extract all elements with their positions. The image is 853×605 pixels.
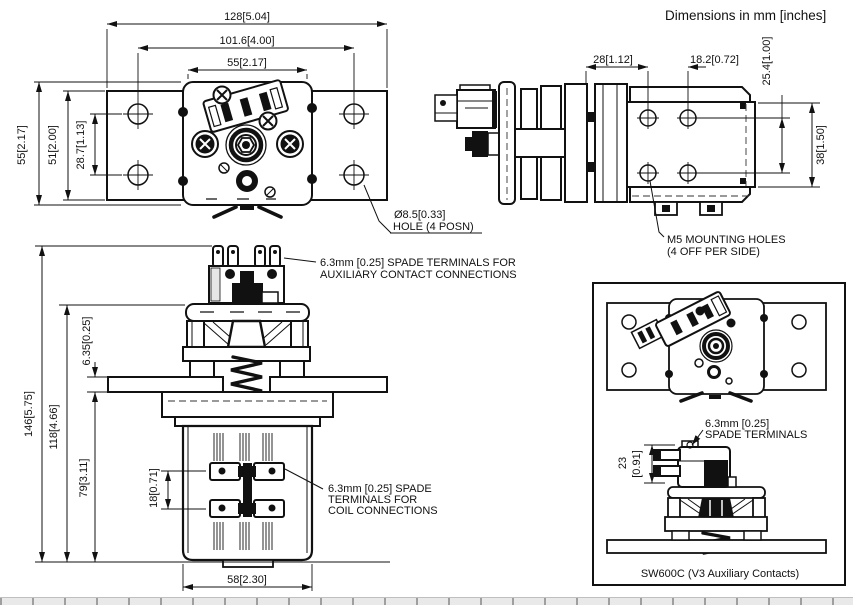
housing-neck: [175, 417, 320, 426]
right-post: [280, 361, 304, 377]
m5-note-line2: (4 OFF PER SIDE): [667, 246, 760, 258]
aux-terminal-blades: [213, 246, 280, 267]
drawing-sheet: 128[5.04] 101.6[4.00] 55[2.17] 55[2.17] …: [0, 0, 853, 605]
top-view: 128[5.04] 101.6[4.00] 55[2.17] 55[2.17] …: [16, 11, 482, 233]
dim-under-flange-label: 79[3.11]: [78, 459, 90, 498]
dimension-drawing: 128[5.04] 101.6[4.00] 55[2.17] 55[2.17] …: [0, 0, 853, 605]
dim-hole-spacing-h-label: 18.2[0.72]: [690, 54, 739, 66]
can-hatch-top: [214, 433, 272, 461]
flange-right: [270, 377, 387, 392]
variant-plan: [607, 291, 826, 401]
side-view: 28[1.12] 18.2[0.72] 25.4[1.00] 38[1.50] …: [435, 37, 827, 258]
dim-plate-height-label: 51[2.00]: [47, 125, 59, 165]
dim-flange-thickness-label: 6.35[0.25]: [81, 317, 93, 366]
body-profile: [499, 82, 627, 204]
dim-hole-spacing-h-label: 101.6[4.00]: [219, 35, 274, 47]
variant-caption: SW600C (V3 Auxiliary Contacts): [641, 568, 799, 580]
bracket-side: [627, 87, 755, 215]
dim-bracket-height-label: 38[1.50]: [815, 125, 827, 165]
dim-body-to-hole-label: 28[1.12]: [593, 54, 633, 66]
aux-terminal-note: 6.3mm [0.25] SPADE TERMINALS FOR AUXILIA…: [284, 257, 517, 281]
coil-note-line3: COIL CONNECTIONS: [328, 505, 438, 517]
bracket-feet: [655, 202, 722, 215]
aux-variant-box: 23 [0.91] 6.3mm [0.25] SPADE TERMINALS S…: [593, 283, 845, 585]
aux-switch-front: [209, 266, 284, 303]
m5-note-line1: M5 MOUNTING HOLES: [667, 234, 786, 246]
dim-body-height-label: 118[4.66]: [48, 404, 60, 449]
plan-legs: [214, 205, 281, 217]
center-stud: [226, 125, 266, 165]
housing-top: [162, 392, 333, 417]
dim-overall-height-label: 55[2.17]: [16, 125, 28, 165]
front-view: 146[5.75] 118[4.66] 6.35[0.25] 79[3.11] …: [23, 246, 517, 591]
aux-note-line2: AUXILIARY CONTACT CONNECTIONS: [320, 269, 517, 281]
dim-body-width-label: 55[2.17]: [227, 57, 267, 69]
units-note: Dimensions in mm [inches]: [665, 8, 826, 23]
flange-left: [108, 377, 223, 392]
hole-note-line1: Ø8.5[0.33]: [394, 209, 445, 221]
left-post: [190, 361, 214, 377]
dim-hole-spacing-v-label: 25.4[1.00]: [761, 37, 773, 86]
dim-hole-spacing-v-label: 28.7[1.13]: [75, 121, 87, 170]
dim-overall-height-label: 146[5.75]: [23, 391, 35, 437]
aux-note-line1: 6.3mm [0.25] SPADE TERMINALS FOR: [320, 257, 516, 269]
hole-note-line2: HOLE (4 POSN): [393, 221, 474, 233]
dim-overall-width-label: 128[5.04]: [224, 11, 270, 23]
spade-note-line2: SPADE TERMINALS: [705, 429, 807, 441]
can-hatch-bottom: [214, 522, 272, 550]
return-spring: [231, 357, 262, 396]
page-edge-strip: [0, 597, 853, 605]
aux-switch-side: [435, 85, 502, 157]
frame-braces: [187, 321, 308, 347]
bottom-boss: [223, 560, 273, 567]
dim-base-width-label: 58[2.30]: [227, 574, 267, 586]
dim-switch-height-mm-label: 23: [617, 457, 629, 469]
dim-coil-terminal-spacing-label: 18[0.71]: [148, 468, 160, 508]
dim-switch-height-in-label: [0.91]: [631, 450, 643, 478]
